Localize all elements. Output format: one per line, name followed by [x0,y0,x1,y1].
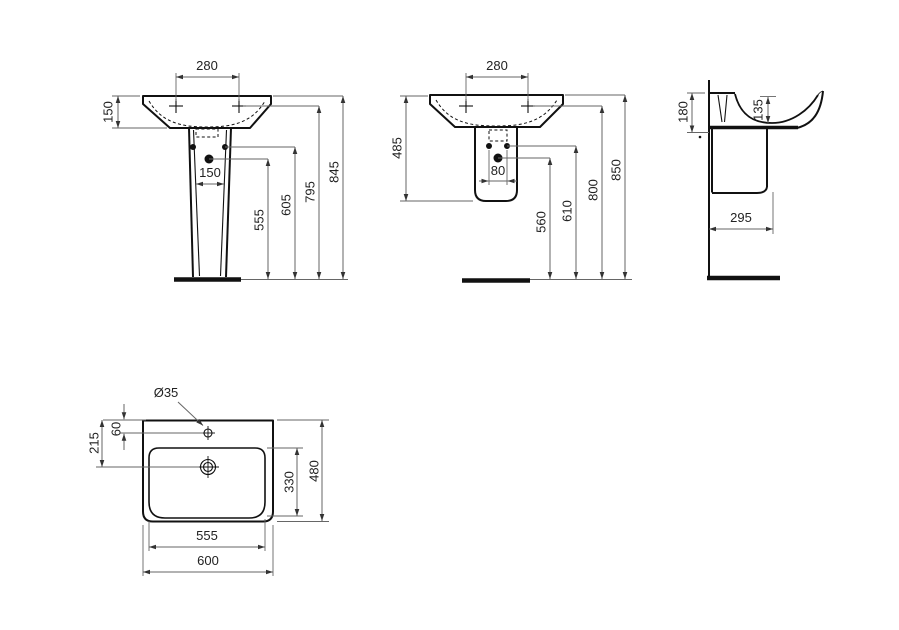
dim-label: 485 [390,137,405,159]
dim-label: 795 [303,181,318,203]
dimension-arrowhead [116,121,121,128]
dimension-arrowhead [709,227,716,232]
dimension-arrowhead [623,95,628,102]
dimension-arrowhead [690,126,695,133]
side-fixing-dot [699,136,702,139]
dim-drain-offset: 215 [87,420,105,467]
dimension-arrowhead [521,75,528,80]
dim-overall-depth: 480 [277,420,329,522]
dimension-arrowhead [690,93,695,100]
dim-label: 845 [327,161,342,183]
dimension-arrowhead [404,96,409,103]
dim-label: 555 [196,528,218,543]
dimension-arrowhead [258,545,265,550]
dimension-arrowhead [317,272,322,279]
top-view: Ø35 215 60 330 480 [87,385,330,576]
dimension-arrowhead [548,158,553,165]
dim-label: 135 [751,99,766,121]
dimension-arrowhead [143,570,150,575]
dimension-arrowhead [293,147,298,154]
technical-drawing-page: 280 150 150 555 605 795 [0,0,899,630]
dim-label: 555 [252,209,267,231]
side-view: 180 135 295 [676,80,824,278]
fixing-hole [486,143,492,149]
front-rim-profile [797,91,823,128]
dimension-arrowhead [293,272,298,279]
basin-outline [430,95,563,127]
dimension-arrowhead [266,570,273,575]
dim-label: 150 [101,101,116,123]
dimension-arrowhead [548,272,553,279]
dimension-arrowhead [320,514,325,521]
dim-projection: 295 [709,192,773,234]
dim-label: 280 [486,58,508,73]
dimension-arrowhead [766,227,773,232]
dimension-arrowhead [600,272,605,279]
dim-label: 480 [307,460,322,482]
dim-tap-hole-offset: 60 [109,404,127,450]
dim-tap-spacing: 280 [176,58,239,101]
bowl-plan-outline [149,448,265,518]
dim-label: 560 [534,211,549,233]
dim-label: 280 [196,58,218,73]
dimension-arrowhead [766,97,771,104]
dim-tap-height: 800 [533,106,604,279]
pedestal-outline [174,128,241,280]
dimension-arrowhead [266,159,271,166]
dimension-arrowhead [295,509,300,516]
dimension-arrowhead [320,420,325,427]
dimension-arrowhead [176,75,183,80]
dimension-arrowhead [317,106,322,113]
dim-back-height: 180 [676,93,710,133]
bowl-profile [735,94,818,123]
dim-label: 60 [109,422,124,436]
dim-label: 800 [586,179,601,201]
dimension-arrowhead [341,272,346,279]
dimension-arrowhead [574,146,579,153]
dim-label: Ø35 [154,385,179,400]
dimension-arrowhead [295,448,300,455]
dim-label: 295 [730,210,752,225]
dimension-arrowhead [149,545,156,550]
dim-label: 330 [282,471,297,493]
dim-label: 150 [199,165,221,180]
basin-outline [143,96,271,128]
dimension-arrowhead [100,420,105,427]
dimension-arrowhead [266,272,271,279]
overflow-dashed-box [196,129,218,137]
dimension-arrowhead [466,75,473,80]
dimension-arrowhead [100,460,105,467]
dimension-arrowhead [122,412,127,419]
dim-label: 180 [676,101,691,123]
tap-hole-section [718,95,727,122]
dimension-arrowhead [232,75,239,80]
dim-tap-hole-diameter: Ø35 [154,385,203,426]
dim-bowl-depth: 135 [751,97,777,124]
dimension-arrowhead [196,182,203,187]
front-view-full-pedestal: 280 150 150 555 605 795 [101,58,349,280]
trap-cover-profile [712,129,767,193]
dimension-arrowhead [574,272,579,279]
dimension-arrowhead [341,96,346,103]
washbasin-technical-drawing: 280 150 150 555 605 795 [0,0,899,630]
dimension-arrowhead [116,96,121,103]
dim-label: 215 [87,432,102,454]
dimension-arrowhead [217,182,224,187]
dimension-arrowhead [623,272,628,279]
dim-label: 610 [560,200,575,222]
dim-label: 600 [197,553,219,568]
front-view-semi-pedestal: 280 485 80 560 610 800 [390,58,633,281]
dimension-arrowhead [404,194,409,201]
dim-label: 80 [491,163,505,178]
dim-label: 605 [279,194,294,216]
dim-tap-height: 795 [243,106,321,279]
dim-bowl-width: 555 [149,519,265,551]
dimension-arrowhead [600,106,605,113]
dim-pedestal-width: 150 [196,165,224,186]
dim-label: 850 [609,159,624,181]
pedestal-fixing-hole [190,144,196,150]
